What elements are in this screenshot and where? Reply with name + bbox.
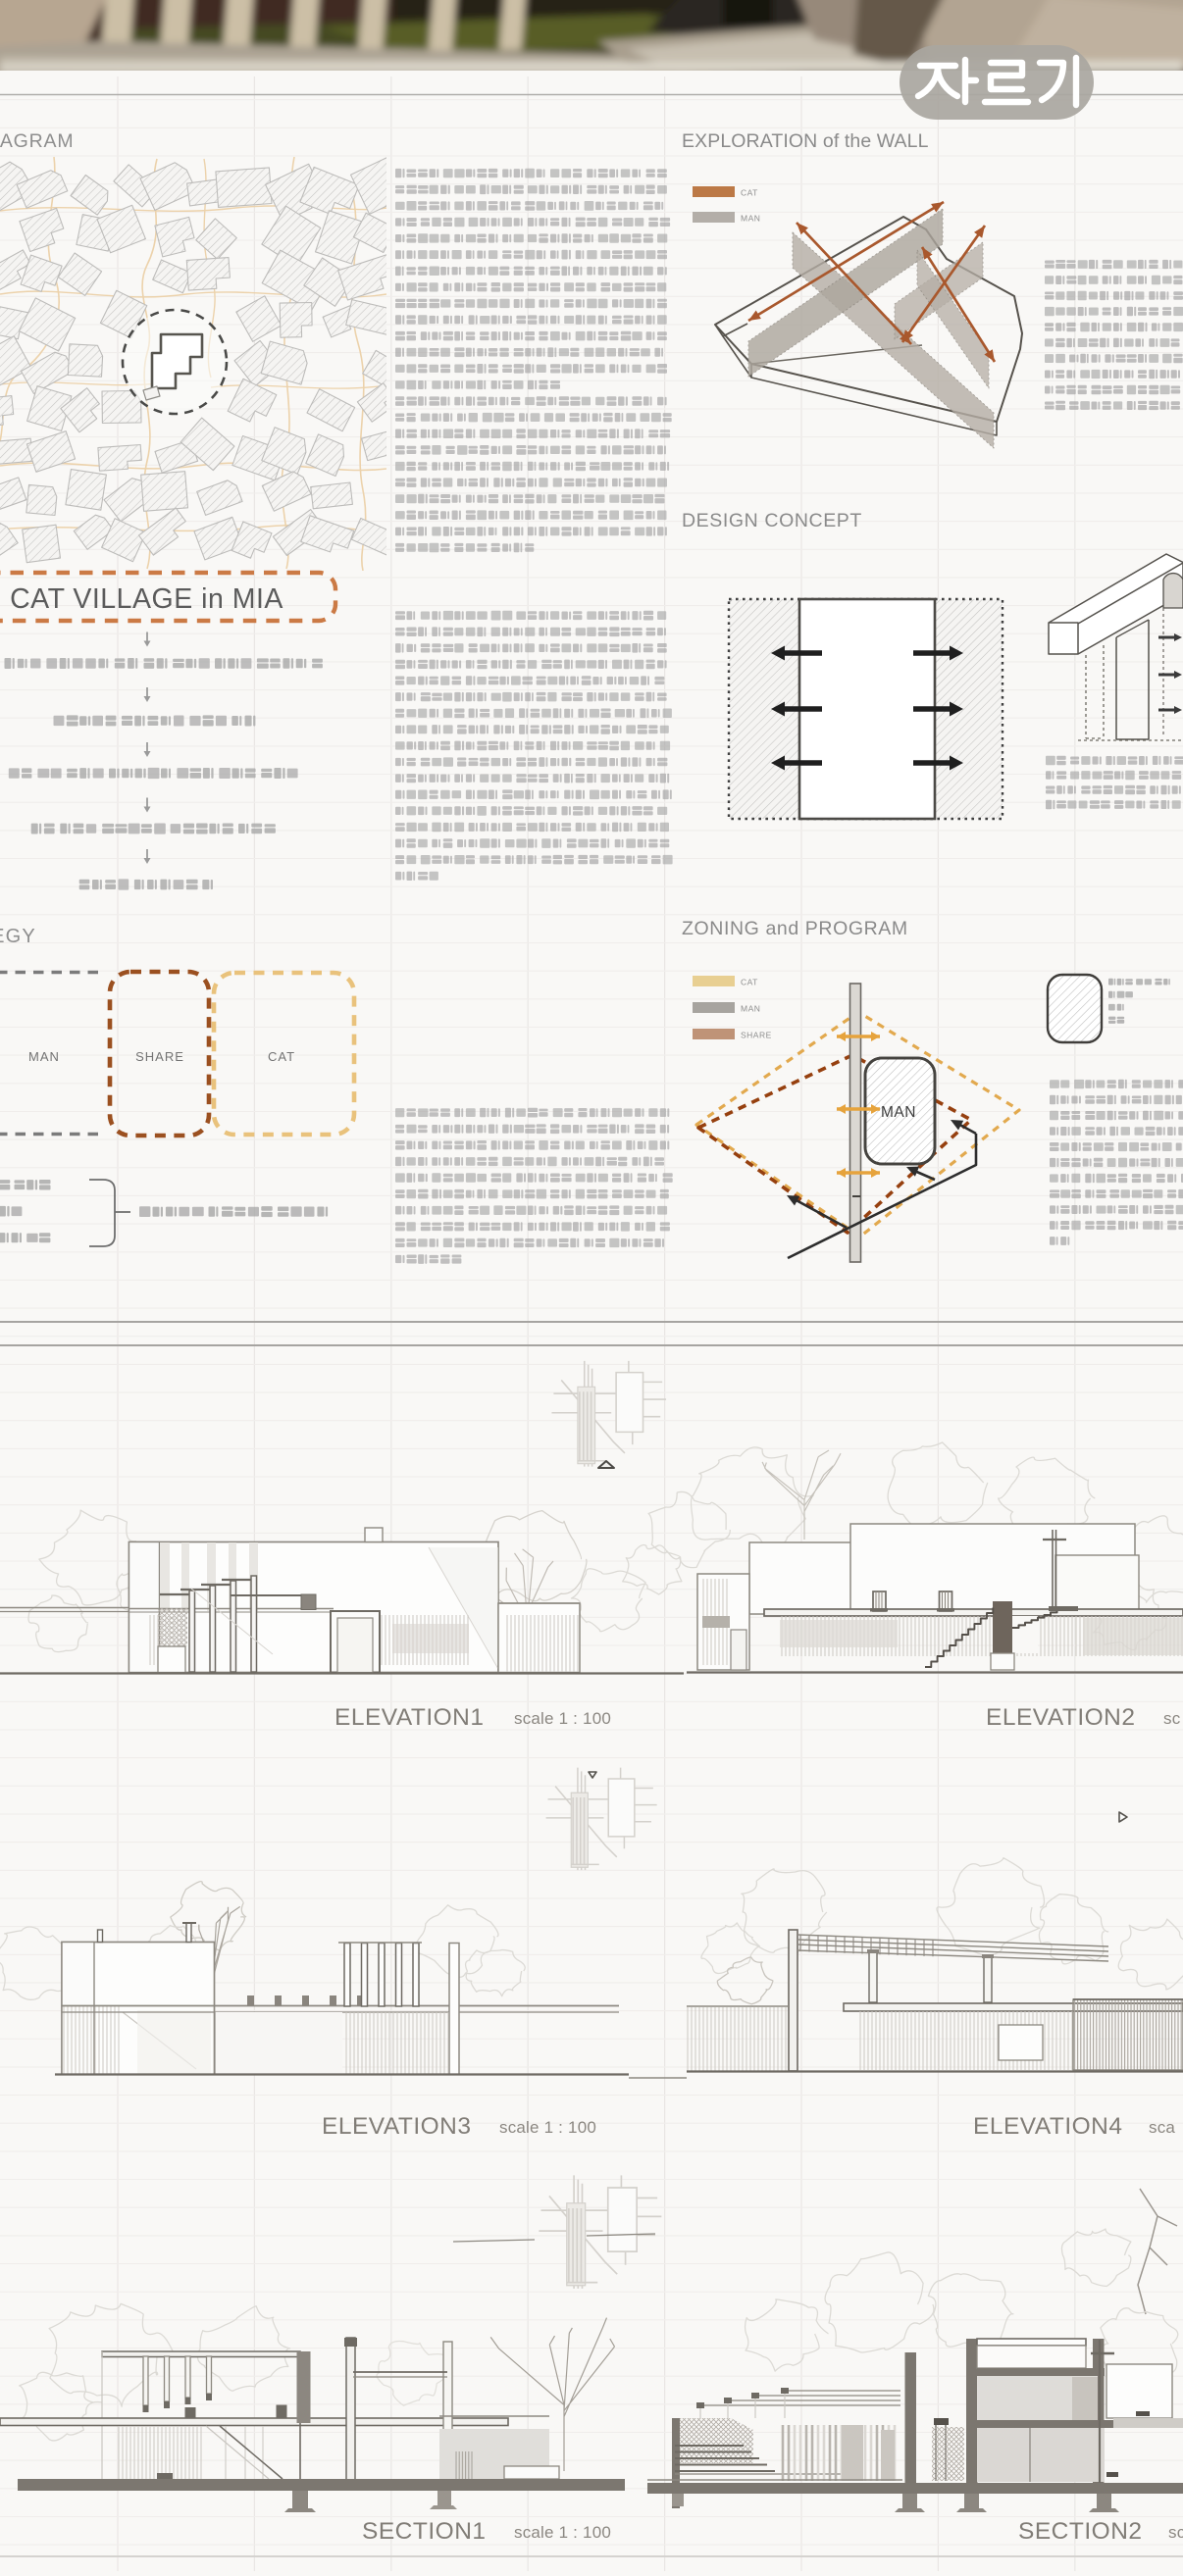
svg-text:CAT: CAT (741, 188, 758, 198)
svg-text:ZONING and PROGRAM: ZONING and PROGRAM (682, 918, 908, 939)
svg-text:SHARE: SHARE (135, 1049, 184, 1064)
svg-text:MAN: MAN (741, 1004, 760, 1014)
svg-text:MAN: MAN (741, 214, 760, 224)
svg-text:SECTION2: SECTION2 (1018, 2518, 1143, 2545)
svg-text:ELEVATION1: ELEVATION1 (334, 1704, 485, 1731)
svg-text:sca: sca (1149, 2118, 1175, 2137)
svg-text:MAN: MAN (881, 1104, 916, 1121)
svg-text:SHARE: SHARE (741, 1031, 772, 1040)
svg-text:scale 1 : 100: scale 1 : 100 (514, 2523, 611, 2542)
svg-text:ELEVATION2: ELEVATION2 (986, 1704, 1136, 1731)
svg-text:CAT VILLAGE in MIA: CAT VILLAGE in MIA (10, 583, 283, 615)
svg-text:sc: sc (1168, 2523, 1183, 2542)
svg-text:scale 1 : 100: scale 1 : 100 (499, 2118, 596, 2137)
svg-text:ELEVATION3: ELEVATION3 (322, 2113, 472, 2140)
svg-text:EXPLORATION of the WALL: EXPLORATION of the WALL (682, 130, 929, 152)
svg-text:SECTION1: SECTION1 (362, 2518, 487, 2545)
svg-text:sc: sc (1163, 1709, 1181, 1728)
svg-text:STRATEGY: STRATEGY (0, 926, 36, 947)
svg-text:ELEVATION4: ELEVATION4 (973, 2113, 1123, 2140)
svg-text:DESIGN CONCEPT: DESIGN CONCEPT (682, 510, 862, 531)
svg-text:scale 1 : 100: scale 1 : 100 (514, 1709, 611, 1728)
svg-text:CAT: CAT (741, 978, 758, 987)
svg-text:MAN: MAN (28, 1049, 60, 1064)
svg-text:CAT: CAT (268, 1049, 295, 1064)
svg-text:SITE DIAGRAM: SITE DIAGRAM (0, 130, 74, 152)
